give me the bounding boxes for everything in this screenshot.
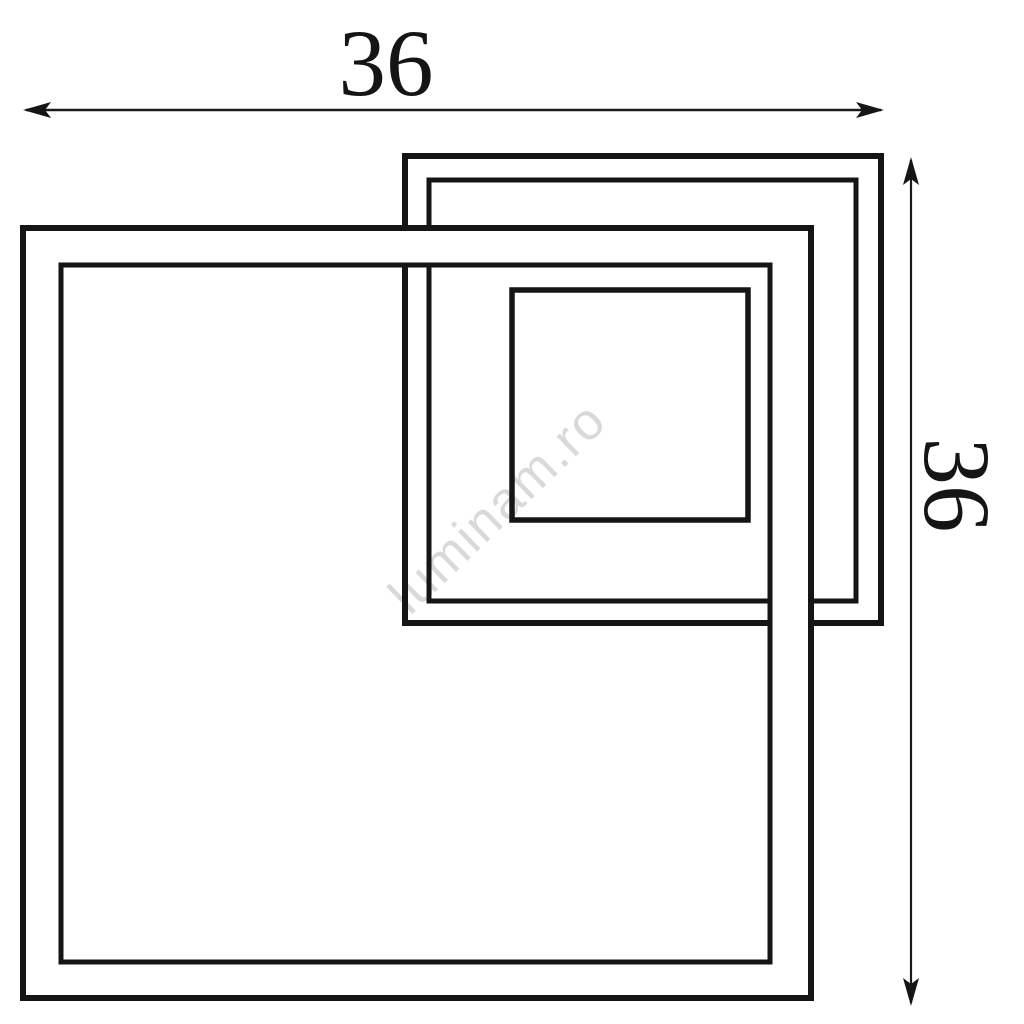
height-dimension-label: 36 <box>904 438 1010 533</box>
dimension-diagram-page: luminam.ro 36 36 <box>0 0 1024 1024</box>
width-dimension-label: 36 <box>339 10 434 116</box>
dimension-diagram: luminam.ro 36 36 <box>0 0 1024 1024</box>
